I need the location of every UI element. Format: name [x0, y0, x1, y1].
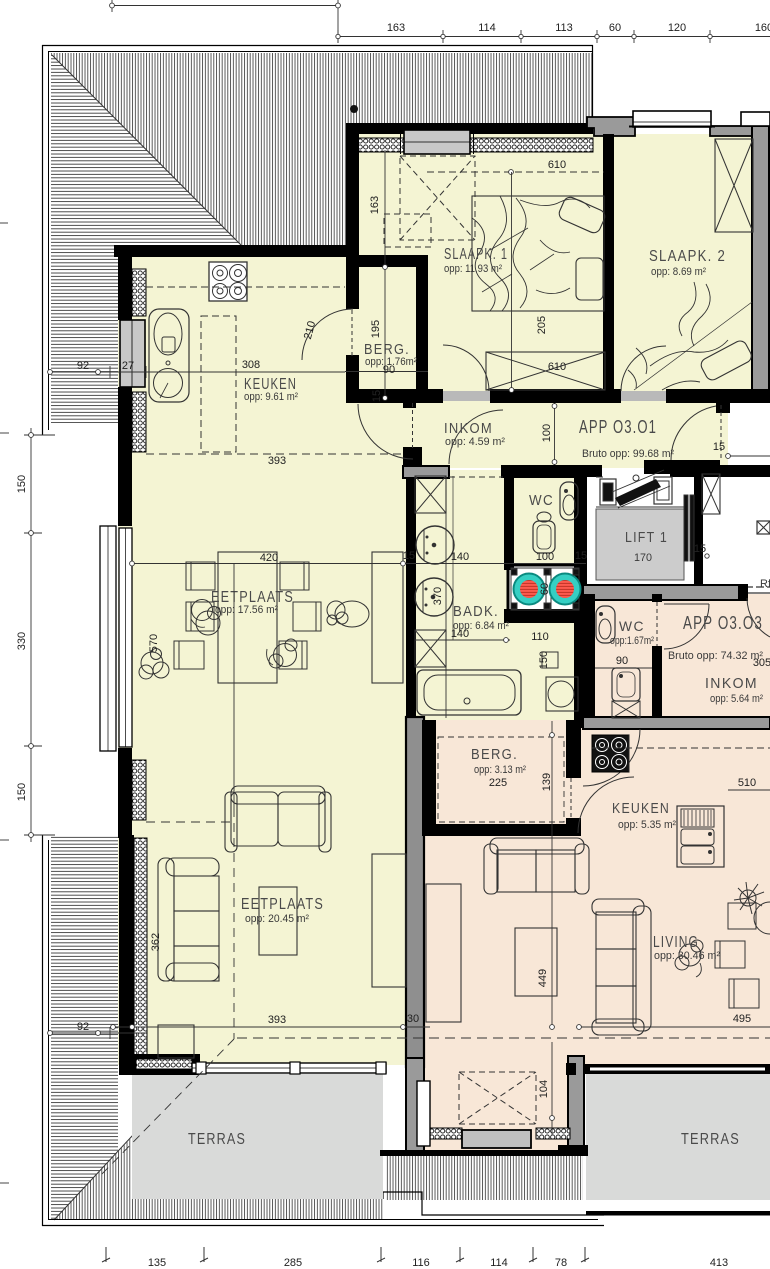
svg-text:370: 370: [432, 587, 444, 605]
svg-text:120: 120: [668, 22, 686, 34]
svg-text:570: 570: [148, 634, 160, 652]
svg-text:308: 308: [242, 359, 260, 371]
svg-text:92: 92: [77, 360, 89, 372]
svg-text:163: 163: [369, 196, 381, 214]
svg-text:opp: 17.56 m²: opp: 17.56 m²: [215, 604, 278, 616]
svg-text:160: 160: [755, 22, 770, 34]
svg-text:140: 140: [451, 628, 469, 640]
svg-text:163: 163: [387, 22, 405, 34]
svg-text:BADK.: BADK.: [453, 603, 499, 620]
svg-text:LIFT 1: LIFT 1: [625, 529, 668, 546]
svg-text:170: 170: [634, 552, 652, 564]
svg-text:92: 92: [77, 1021, 89, 1033]
svg-text:WC: WC: [619, 618, 645, 634]
svg-text:78: 78: [555, 1257, 567, 1269]
svg-text:205: 205: [536, 316, 548, 334]
svg-text:305: 305: [753, 657, 770, 669]
svg-text:285: 285: [284, 1257, 302, 1269]
svg-text:90: 90: [616, 655, 628, 667]
svg-text:114: 114: [490, 1257, 508, 1269]
svg-text:LIVING: LIVING: [653, 934, 699, 951]
svg-text:116: 116: [412, 1257, 430, 1269]
svg-text:15: 15: [694, 543, 706, 555]
svg-text:BERG.: BERG.: [471, 746, 518, 763]
svg-text:114: 114: [478, 22, 496, 34]
svg-text:60: 60: [539, 583, 551, 595]
svg-text:WC: WC: [529, 492, 554, 509]
svg-text:393: 393: [268, 455, 286, 467]
svg-text:opp: 5.64 m²: opp: 5.64 m²: [710, 693, 763, 705]
svg-text:opp: 11.93 m²: opp: 11.93 m²: [444, 263, 502, 275]
svg-text:150: 150: [16, 783, 28, 801]
svg-text:150: 150: [538, 651, 550, 669]
svg-text:INKOM: INKOM: [444, 420, 493, 437]
svg-text:opp: 5.35 m²: opp: 5.35 m²: [618, 819, 676, 831]
svg-text:Bruto opp: 74.32 m²: Bruto opp: 74.32 m²: [668, 650, 763, 662]
svg-text:APP O3.O1: APP O3.O1: [579, 417, 657, 437]
svg-text:15: 15: [403, 550, 415, 562]
svg-text:SLAAPK. 2: SLAAPK. 2: [649, 248, 726, 265]
svg-text:449: 449: [537, 969, 549, 987]
svg-text:opp: 20.45 m²: opp: 20.45 m²: [245, 913, 309, 925]
svg-text:opp: 30.46 m²: opp: 30.46 m²: [654, 950, 720, 962]
svg-text:104: 104: [538, 1080, 550, 1098]
svg-text:195: 195: [370, 320, 382, 338]
svg-text:TERRAS: TERRAS: [681, 1131, 740, 1148]
svg-text:15: 15: [713, 441, 725, 453]
svg-text:opp: 3.13 m²: opp: 3.13 m²: [474, 764, 526, 776]
svg-text:330: 330: [16, 632, 28, 650]
svg-text:139: 139: [541, 773, 553, 791]
svg-text:INKOM: INKOM: [705, 675, 758, 692]
svg-text:100: 100: [541, 424, 553, 442]
svg-text:SLAAPK. 1: SLAAPK. 1: [444, 246, 508, 263]
svg-text:15: 15: [575, 550, 587, 562]
svg-text:140: 140: [451, 551, 469, 563]
svg-text:TERRAS: TERRAS: [188, 1131, 246, 1148]
svg-text:opp: 9.61 m²: opp: 9.61 m²: [244, 391, 298, 403]
svg-text:610: 610: [548, 361, 566, 373]
svg-text:KEUKEN: KEUKEN: [612, 800, 670, 817]
svg-text:opp: 8.69 m²: opp: 8.69 m²: [651, 266, 706, 278]
svg-text:opp:1.67m²: opp:1.67m²: [610, 635, 654, 647]
svg-text:100: 100: [536, 551, 554, 563]
svg-text:510: 510: [738, 777, 756, 789]
svg-text:413: 413: [710, 1257, 728, 1269]
svg-text:610: 610: [548, 159, 566, 171]
svg-text:420: 420: [260, 552, 278, 564]
svg-text:opp: 4.59 m²: opp: 4.59 m²: [445, 436, 505, 448]
svg-text:150: 150: [16, 475, 28, 493]
svg-text:APP O3.O3: APP O3.O3: [683, 613, 763, 633]
svg-text:135: 135: [148, 1257, 166, 1269]
svg-text:362: 362: [150, 933, 162, 951]
svg-text:90: 90: [383, 364, 395, 376]
svg-text:15: 15: [371, 390, 383, 402]
svg-text:110: 110: [531, 631, 549, 643]
svg-text:393: 393: [268, 1014, 286, 1026]
svg-text:Rf: Rf: [760, 578, 770, 590]
svg-text:113: 113: [555, 22, 573, 34]
svg-text:495: 495: [733, 1013, 751, 1025]
svg-text:Bruto opp: 99.68 m²: Bruto opp: 99.68 m²: [582, 448, 674, 460]
svg-text:EETPLAATS: EETPLAATS: [241, 896, 324, 913]
svg-text:27: 27: [122, 360, 134, 372]
svg-text:60: 60: [609, 22, 621, 34]
svg-text:225: 225: [489, 777, 507, 789]
svg-text:30: 30: [407, 1013, 419, 1025]
